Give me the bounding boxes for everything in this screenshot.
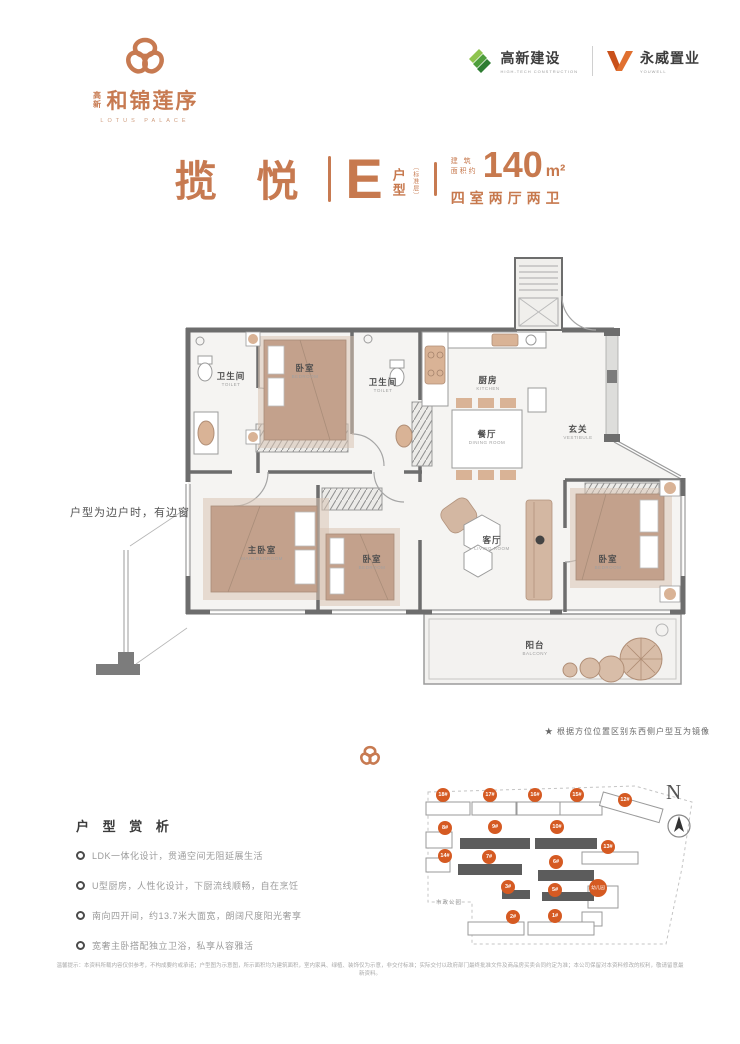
facility-badge: 幼儿园 <box>589 879 607 897</box>
building-badge: 18# <box>436 788 450 802</box>
building-badge: 12# <box>618 793 632 807</box>
bullet-icon <box>76 881 85 890</box>
analysis-bullet-2: U型厨房，人性化设计，下厨流线顺畅，自在烹饪 <box>76 879 356 892</box>
room-label-vestibule: 玄关 VESTIBULE <box>563 424 592 440</box>
building-badge: 2# <box>506 910 520 924</box>
side-window-note: 户型为边户时，有边窗 <box>70 504 190 520</box>
bullet-icon <box>76 851 85 860</box>
north-label: N <box>666 780 681 805</box>
room-label-dining: 餐厅 DINING ROOM <box>469 429 506 445</box>
park-label: 市政公园 <box>436 898 496 906</box>
room-label-bedroom-3: 卧室 BEDROOM <box>595 554 622 570</box>
brochure-page: 高新 和锦莲序 LOTUS PALACE 高新建设 HIGH-TECH CONS… <box>0 0 740 1044</box>
building-badge: 7# <box>482 850 496 864</box>
room-label-main-bedroom: 主卧室 MAIN BEDROOM <box>241 545 283 561</box>
analysis-title: 户 型 赏 析 <box>76 816 356 835</box>
building-badge: 17# <box>483 788 497 802</box>
building-badge: 6# <box>549 855 563 869</box>
building-badge: 5# <box>548 883 562 897</box>
building-badge: 3# <box>501 880 515 894</box>
building-badge: 13# <box>601 840 615 854</box>
north-compass <box>668 815 690 837</box>
building-badge: 15# <box>570 788 584 802</box>
mirror-note: ★ 根据方位位置区别东西侧户型互为镜像 <box>0 726 710 737</box>
room-label-bedroom-2: 卧室 BEDROOM <box>359 554 386 570</box>
analysis-bullet-3: 南向四开间，约13.7米大面宽，朗阔尺度阳光奢享 <box>76 909 356 922</box>
building-badge: 9# <box>488 820 502 834</box>
dark-buildings <box>458 838 597 901</box>
building-badge: 16# <box>528 788 542 802</box>
analysis-bullet-1: LDK一体化设计，贯通空间无阻延展生活 <box>76 849 356 862</box>
room-label-bedroom-1: 卧室 BEDROOM <box>292 363 319 379</box>
divider-flower-icon <box>358 745 382 767</box>
siteplan: 18# 17# 16# 15# 12# 8# 9# 10# 13# 14# 7#… <box>420 778 710 953</box>
building-badge: 14# <box>438 849 452 863</box>
building-badge: 10# <box>550 820 564 834</box>
room-label-toilet-1: 卫生间 TOILET <box>217 371 246 387</box>
floorplan-labels: 卫生间 TOILET 卧室 BEDROOM 卫生间 TOILET 厨房 KITC… <box>0 0 740 740</box>
disclaimer-text: 温馨提示：本资料所载内容仅供参考，不构成要约或承诺；户型图为示意图，所示面积均为… <box>55 962 685 979</box>
room-label-toilet-2: 卫生间 TOILET <box>369 377 398 393</box>
room-label-balcony: 阳台 BALCONY <box>522 640 547 656</box>
building-badge: 1# <box>548 909 562 923</box>
analysis-bullet-4: 宽奢主卧搭配独立卫浴，私享从容雅活 <box>76 939 356 952</box>
analysis-section: 户 型 赏 析 LDK一体化设计，贯通空间无阻延展生活 U型厨房，人性化设计，下… <box>76 816 356 969</box>
bullet-icon <box>76 941 85 950</box>
room-label-kitchen: 厨房 KITCHEN <box>476 375 499 391</box>
room-label-living: 客厅 LIVING ROOM <box>474 535 510 551</box>
outline-buildings <box>426 792 663 935</box>
bullet-icon <box>76 911 85 920</box>
building-badge: 8# <box>438 821 452 835</box>
